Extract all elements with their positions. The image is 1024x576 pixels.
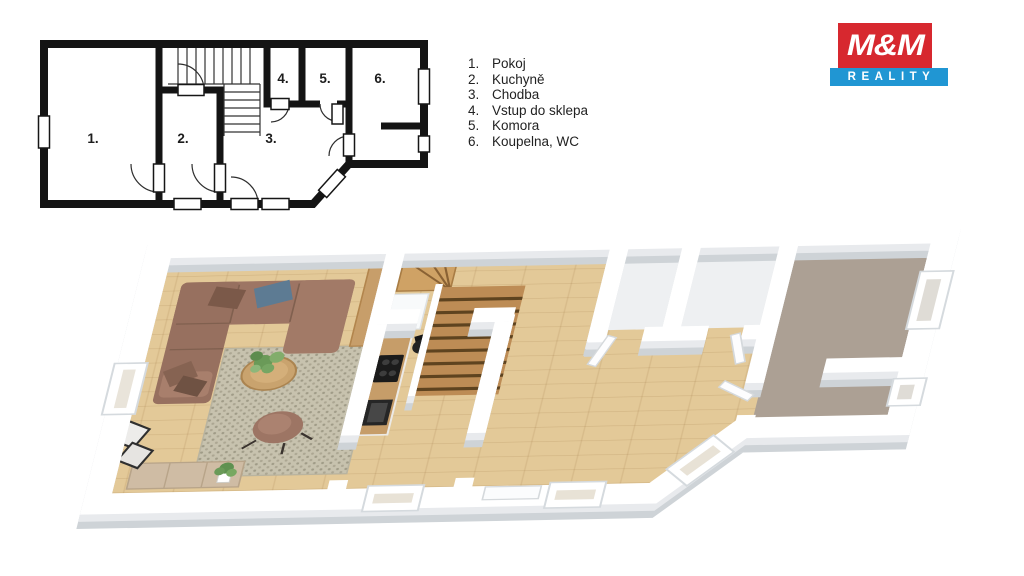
window-bottom2-3d: [544, 481, 606, 508]
door-leaf-stairs: [178, 85, 204, 96]
entrance-door-2d: [231, 199, 258, 210]
legend-num: 1.: [468, 56, 488, 72]
window-right-2: [419, 136, 430, 152]
legend-item-2: 2. Kuchyně: [468, 72, 588, 88]
legend-num: 2.: [468, 72, 488, 88]
room-label-1: 1.: [87, 131, 98, 146]
legend-num: 6.: [468, 134, 488, 150]
legend-label: Kuchyně: [488, 72, 588, 88]
window-left: [39, 116, 50, 148]
mm-reality-logo: M&M REALITY: [826, 21, 948, 86]
legend-label: Koupelna, WC: [488, 134, 588, 150]
window-bottom-1: [174, 199, 201, 210]
window-right-1: [419, 69, 430, 104]
floorplan-sheet: 1. 2. 3. 4. 5. 6. 1. Pokoj 2. Kuchyně 3.…: [0, 0, 1024, 576]
door-leaf-room2: [215, 164, 226, 192]
door-leaf-room5: [332, 104, 343, 124]
window-right2-3d: [887, 378, 927, 406]
legend-label: Komora: [488, 118, 588, 134]
door-leaf-room1: [154, 164, 165, 192]
room-label-6: 6.: [374, 71, 385, 86]
render-3d: [76, 232, 963, 518]
room-label-3: 3.: [265, 131, 276, 146]
logo-reality-box: REALITY: [830, 68, 948, 86]
floor-plan-3d: [0, 210, 1024, 576]
logo-reality-text: REALITY: [843, 71, 936, 83]
legend-item-4: 4. Vstup do sklepa: [468, 103, 588, 119]
room-label-2: 2.: [177, 131, 188, 146]
sideboard: [127, 461, 245, 489]
legend-item-6: 6. Koupelna, WC: [468, 134, 588, 150]
legend-item-3: 3. Chodba: [468, 87, 588, 103]
floor-plan-2d: 1. 2. 3. 4. 5. 6.: [34, 34, 434, 214]
window-bottom-2: [262, 199, 289, 210]
legend-label: Vstup do sklepa: [488, 103, 588, 119]
legend-num: 4.: [468, 103, 488, 119]
room-label-4: 4.: [277, 71, 288, 86]
legend-num: 5.: [468, 118, 488, 134]
logo-mm-text: M&M: [847, 29, 924, 63]
legend-item-1: 1. Pokoj: [468, 56, 588, 72]
logo-mm-box: M&M: [838, 23, 932, 68]
room-legend: 1. Pokoj 2. Kuchyně 3. Chodba 4. Vstup d…: [468, 56, 588, 150]
door-leaf-room4: [271, 99, 289, 110]
window-bottom1-3d: [362, 485, 424, 512]
legend-num: 3.: [468, 87, 488, 103]
legend-item-5: 5. Komora: [468, 118, 588, 134]
door-leaf-room6: [344, 134, 355, 156]
legend-label: Chodba: [488, 87, 588, 103]
legend-label: Pokoj: [488, 56, 588, 72]
room-label-5: 5.: [319, 71, 330, 86]
entrance-door-3d: [482, 486, 541, 500]
